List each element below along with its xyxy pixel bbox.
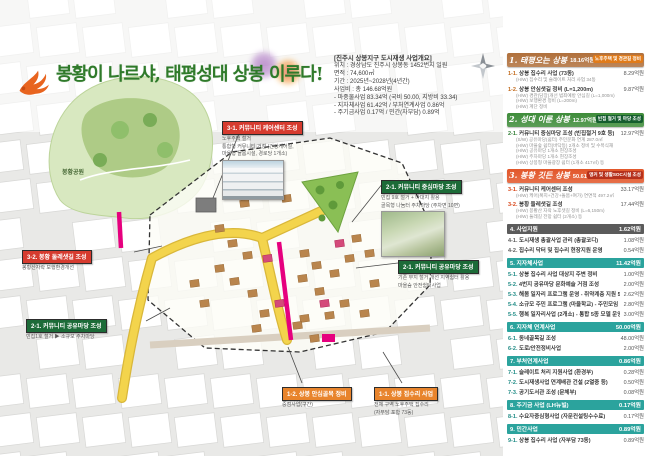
budget-item-row: 4-2. 집수리 닥터 및 집수리 현장지원 운영0.54억원 [508,246,644,254]
city-block [440,296,483,331]
callout-line: 중점사업(구간) [282,402,382,409]
building [300,249,310,257]
budget-item: 3-2. 봉황 둘레샛길 조성17.44억원(H/W) 봉황산 자락 노후샛길 … [508,200,644,219]
item-number: 8-1. [508,414,519,420]
item-subline: (H/W) 집수리 및 슬레이트 처리 사업 34동 [516,77,644,83]
item-title: 5-5. 행복 일자리사업 (2개소) - 통합 5종 모델 운영 [508,310,620,318]
city-block [312,413,355,448]
city-block [266,413,309,448]
section-title: 3. 봉황 깃든 상봉 [509,170,570,181]
item-amount: 0.54억원 [624,246,644,254]
item-subline: (H/W) 상봉형 마을광장 쉼터 (1개소 417㎡) 등 [516,160,644,166]
item-amount: 3.00억원 [624,310,644,318]
item-title: 7-2. 도시재생사업 연계배관 건설 (2열중 등) [508,378,608,386]
section-header: 1. 태평오는 상봉18.16억원노후주택 및 경관길 정비 [507,53,644,67]
map-callout: 2-1. 커뮤니티 공유마당 조성기존 부지 철거 개선 지역쉼터 활용마을숲 … [398,256,504,289]
budget-sidebar: 1. 태평오는 상봉18.16억원노후주택 및 경관길 정비1-1. 상봉 집수… [503,0,647,456]
item-number: 5-5. [508,312,519,318]
section-title: 9. 민간사업 [510,424,538,433]
item-amount: 17.44억원 [621,200,644,208]
item-number: 7-2. [508,380,519,386]
building [320,299,330,307]
item-title: 9-1. 상봉 집수리 사업 (자부담 73동) [508,436,591,444]
section-header: 7. 부처연계사업0.86억원 [507,356,644,366]
building [335,239,345,247]
building [340,299,350,307]
budget-item-row: 7-1. 슬레이트 처리 지원사업 (환경부)0.28억원 [508,368,644,376]
overview-line: 사업비 : 총 146.68억원 [334,87,502,95]
budget-item: 5-2. 4번지 공유마당 문화예술 거점 조성2.00억원 [508,280,644,288]
map-callout: 1-2. 상봉 안심골목 정비중점사업(구간) [282,383,382,409]
item-amount: 48.00억원 [621,334,644,342]
building [365,249,375,257]
item-number: 7-3. [508,390,519,396]
item-title: 2-1. 커뮤니티 중심마당 조성 (빈집철거 9호 등) [508,129,614,137]
callout-line: 노후주택 철거 [222,136,354,143]
item-number: 1-2. [508,87,519,93]
building [370,279,380,287]
item-title: 6-2. 도로/안전정비사업 [508,344,561,352]
section-badge: 노후주택 및 경관길 정비 [593,55,643,63]
item-number: 5-3. [508,292,519,298]
city-block [0,374,24,409]
callout-header: 2-1. 커뮤니티 공유마당 조성 [398,260,479,274]
budget-item-row: 8-1. 수요자중심형사업 (자문컨설팅수수료)0.17억원 [508,412,644,420]
slogan-banner: 봉황이 나르샤, 태평성대 상봉 이루다! [18,58,338,110]
budget-item: 7-3. 공기도서관 조성 (문체부)0.08억원 [508,388,644,396]
overview-line: - 마중물사업 83.34억 (국비 50.00, 지방비 33.34) [334,95,502,103]
project-road-2 [119,212,121,248]
building [215,224,225,232]
building [215,264,225,272]
callout-header: 3-2. 봉황 둘레샛길 조성 [22,250,92,264]
item-title: 5-2. 4번지 공유마당 문화예술 거점 조성 [508,280,599,288]
city-block [0,296,24,331]
callout-line: 골목형 나눔터 주차마당 (주차면 10면) [381,203,501,210]
map-callout: 1-1. 상봉 집수리 사업전체 구역 노후주택 집수리(자부담 포함 73동) [374,383,468,416]
item-amount: 2.62억원 [624,290,644,298]
callout-header: 2-1. 커뮤니티 중심마당 조성 [381,180,462,194]
highlight-building [322,334,335,342]
section-amount: 0.89억원 [619,424,641,433]
budget-item-row: 3-1. 커뮤니티 케어센터 조성33.17억원 [508,185,644,193]
section-header: 8. 주기금 사업 (LH뉴빌)0.17억원 [507,400,644,410]
building [298,274,308,282]
budget-item: 2-1. 커뮤니티 중심마당 조성 (빈집철거 9호 등)12.97억원(S/W… [508,129,644,166]
callout-header: 3-1. 커뮤니티 케어센터 조성 [222,121,303,135]
item-number: 4-1. [508,238,519,244]
building [252,324,262,332]
building [200,299,210,307]
budget-item-row: 1-1. 상봉 집수리 사업 (73동)8.29억원 [508,69,644,77]
city-block [220,413,263,448]
item-amount: 0.50억원 [624,378,644,386]
budget-item: 7-2. 도시재생사업 연계배관 건설 (2열중 등)0.50억원 [508,378,644,386]
callout-line: 마을숲 안전쉼터사업 [398,283,504,290]
budget-item-row: 6-2. 도로/안전정비사업2.00억원 [508,344,644,352]
item-title: 1-2. 상봉 안심샛길 정비 (L=1,200m) [508,85,593,93]
item-title: 5-4. 소규모 주민 프로그램 (마을학교) - 주민모임 5곳 [508,300,620,308]
building [293,321,303,329]
budget-item: 5-1. 상봉 집수리 사업 대상지 주변 정비1.00억원 [508,270,644,278]
budget-item-row: 7-2. 도시재생사업 연계배관 건설 (2열중 등)0.50억원 [508,378,644,386]
callout-line: 마을형 돌봄시설, 경로당 1개소) [222,151,354,158]
callout-line: 통합형 커뮤니티 거점 (건강케어실, [222,144,354,151]
park-label: 봉황공원 [62,168,84,176]
callout-line: 봉황산자락 보행환경개선 [22,265,138,272]
building [260,309,270,317]
budget-item-row: 6-1. 동네골목길 조성48.00억원 [508,334,644,342]
city-block [0,218,24,253]
item-title: 3-2. 봉황 둘레샛길 조성 [508,200,563,208]
budget-item-row: 5-5. 행복 일자리사업 (2개소) - 통합 5종 모델 운영3.00억원 [508,310,644,318]
section-header: 3. 봉황 깃든 상봉50.61억원앵커 및 생활SOC시설 조성 [507,169,644,183]
budget-item: 9-1. 상봉 집수리 사업 (자부담 73동)0.89억원 [508,436,644,444]
item-number: 3-1. [508,187,519,193]
city-block [440,140,483,175]
item-amount: 0.17억원 [624,412,644,420]
budget-item: 4-2. 집수리 닥터 및 집수리 현장지원 운영0.54억원 [508,246,644,254]
item-amount: 0.08억원 [624,388,644,396]
budget-item: 8-1. 수요자중심형사업 (자문컨설팅수수료)0.17억원 [508,412,644,420]
building [190,279,200,287]
item-title: 5-1. 상봉 집수리 사업 대상지 주변 정비 [508,270,598,278]
section-badge: 빈집 철거 및 마당 조성 [596,115,643,123]
budget-item-row: 1-2. 상봉 안심샛길 정비 (L=1,200m)9.87억원 [508,85,644,93]
section-header: 9. 민간사업0.89억원 [507,424,644,434]
compass-icon [470,52,496,82]
budget-item: 5-5. 행복 일자리사업 (2개소) - 통합 5종 모델 운영3.00억원 [508,310,644,318]
callout-line: 기존 부지 철거 개선 지역쉼터 활용 [398,275,504,282]
callout-line: (자부담 포함 73동) [374,410,468,417]
section-title: 5. 지자체사업 [510,258,543,267]
city-block [404,413,447,448]
city-block [72,374,115,409]
overview-line: - 주기금사업 0.17억 / 민간(자부담) 0.89억 [334,110,502,118]
building [263,254,273,262]
item-number: 9-1. [508,438,519,444]
item-number: 6-1. [508,336,519,342]
budget-item: 5-3. 해봄 일자리 프로그램 운영 - 취약계층 지원 5곳2.62억원 [508,290,644,298]
section-amount: 1.62억원 [619,224,641,233]
section-title: 8. 주기금 사업 (LH뉴빌) [510,400,569,409]
budget-item-row: 9-1. 상봉 집수리 사업 (자부담 73동)0.89억원 [508,436,644,444]
budget-item: 1-2. 상봉 안심샛길 정비 (L=1,200m)9.87억원(H/W) 경관… [508,85,644,110]
slogan-text: 봉황이 나르샤, 태평성대 상봉 이루다! [56,66,356,85]
section-header: 5. 지자체사업11.42억원 [507,258,644,268]
item-subline: (H/W) 케어(복지+건강+돌봄+여가) 연면적 497.2㎡ [516,193,644,199]
section-title: 6. 지자체 연계사업 [510,322,555,331]
item-amount: 0.89억원 [624,436,644,444]
item-amount: 1.08억원 [624,236,644,244]
city-block [174,413,217,448]
section-amount: 11.42억원 [616,258,641,267]
city-block [358,335,401,370]
building [275,299,285,307]
phoenix-icon [18,64,52,102]
city-block [26,374,69,409]
item-number: 4-2. [508,248,519,254]
building [312,261,322,269]
item-amount: 8.29억원 [624,69,644,77]
item-number: 6-2. [508,346,519,352]
budget-item-row: 7-3. 공기도서관 조성 (문체부)0.08억원 [508,388,644,396]
item-title: 4-1. 도시재생 총괄사업 관리 (총괄코디) [508,236,598,244]
care-center-building [196,198,216,212]
budget-item: 3-1. 커뮤니티 케어센터 조성33.17억원(H/W) 케어(복지+건강+돌… [508,185,644,199]
item-amount: 1.00억원 [624,270,644,278]
budget-item-row: 5-2. 4번지 공유마당 문화예술 거점 조성2.00억원 [508,280,644,288]
section-header: 2. 성대 이룬 상봉12.97억원빈집 철거 및 마당 조성 [507,113,644,127]
section-badge: 앵커 및 생활SOC시설 조성 [587,171,643,179]
item-number: 7-1. [508,370,519,376]
building [230,277,240,285]
section-title: 1. 태평오는 상봉 [509,55,567,66]
section-title: 2. 성대 이룬 상봉 [509,114,570,125]
city-block [36,413,79,448]
section-title: 7. 부처연계사업 [510,356,548,365]
item-title: 7-1. 슬레이트 처리 지원사업 (환경부) [508,368,593,376]
section-amount: 12.97억원 [573,116,597,124]
building [315,287,325,295]
city-block [450,413,493,448]
map-callout: 2-1. 커뮤니티 공유마당 조성빈집1호 철거 ▶ 소규모 주차마당 [26,315,148,341]
item-amount: 0.28억원 [624,368,644,376]
section-header: 6. 지자체 연계사업50.00억원 [507,322,644,332]
callout-header: 1-2. 상봉 안심골목 정비 [282,387,352,401]
budget-item-row: 4-1. 도시재생 총괄사업 관리 (총괄코디)1.08억원 [508,236,644,244]
item-title: 8-1. 수요자중심형사업 (자문컨설팅수수료) [508,412,605,420]
city-block [0,140,24,175]
map-callout: 2-1. 커뮤니티 중심마당 조성빈집 9호 철거 + 나대지 활용골목형 나눔… [381,176,501,257]
budget-item: 1-1. 상봉 집수리 사업 (73동)8.29억원(H/W) 집수리 및 슬레… [508,69,644,83]
city-block [358,413,401,448]
callout-header: 1-1. 상봉 집수리 사업 [374,387,438,401]
section-amount: 0.86억원 [619,356,641,365]
item-subline: (H/W) 둘레길 전망 쉼터 (2개소) 등 [516,214,644,220]
item-number: 5-2. [508,282,519,288]
item-title: 3-1. 커뮤니티 케어센터 조성 [508,185,573,193]
section-amount: 50.00억원 [616,322,641,331]
building [240,199,250,207]
budget-item-row: 5-3. 해봄 일자리 프로그램 운영 - 취약계층 지원 5곳2.62억원 [508,290,644,298]
item-title: 7-3. 공기도서관 조성 (문체부) [508,388,576,396]
building [360,309,370,317]
item-subline: (H/W) 계단 정비 [516,104,644,110]
section-amount: 0.17억원 [619,400,641,409]
city-block [128,413,171,448]
item-title: 1-1. 상봉 집수리 사업 (73동) [508,69,574,77]
budget-item-row: 5-1. 상봉 집수리 사업 대상지 주변 정비1.00억원 [508,270,644,278]
callout-line: 전체 구역 노후주택 집수리 [374,402,468,409]
city-block [450,335,493,370]
city-block [82,413,125,448]
item-number: 5-4. [508,302,519,308]
budget-item-row: 3-2. 봉황 둘레샛길 조성17.44억원 [508,200,644,208]
section-header: 4. 사업지원1.62억원 [507,224,644,234]
budget-item: 5-4. 소규모 주민 프로그램 (마을학교) - 주민모임 5곳2.80억원 [508,300,644,308]
callout-header: 2-1. 커뮤니티 공유마당 조성 [26,319,107,333]
building [228,239,238,247]
building [352,234,362,242]
map-callout: 3-2. 봉황 둘레샛길 조성봉황산자락 보행환경개선 [22,246,138,272]
item-title: 4-2. 집수리 닥터 및 집수리 현장지원 운영 [508,246,603,254]
item-amount: 33.17억원 [621,185,644,193]
building [243,251,253,259]
city-block [0,179,34,214]
item-amount: 9.87억원 [624,85,644,93]
item-amount: 2.00억원 [624,344,644,352]
city-block [164,374,207,409]
budget-item-row: 2-1. 커뮤니티 중심마당 조성 (빈집철거 9호 등)12.97억원 [508,129,644,137]
callout-photo-image [381,211,445,257]
building [310,334,320,342]
urban-regeneration-poster: 봉황공원 [0,0,647,456]
city-block [210,374,253,409]
item-number: 5-1. [508,272,519,278]
budget-item: 6-1. 동네골목길 조성48.00억원 [508,334,644,342]
budget-item-row: 5-4. 소규모 주민 프로그램 (마을학교) - 주민모임 5곳2.80억원 [508,300,644,308]
callout-rendering-image [222,160,284,200]
building [330,269,340,277]
section-amount: 18.16억원 [570,56,594,64]
item-title: 6-1. 동네골목길 조성 [508,334,556,342]
callout-line: 빈집1호 철거 ▶ 소규모 주차마당 [26,334,148,341]
building [345,254,355,262]
item-title: 5-3. 해봄 일자리 프로그램 운영 - 취약계층 지원 5곳 [508,290,620,298]
budget-item: 4-1. 도시재생 총괄사업 관리 (총괄코디)1.08억원 [508,236,644,244]
building [248,289,258,297]
item-amount: 2.00억원 [624,280,644,288]
budget-item: 6-2. 도로/안전정비사업2.00억원 [508,344,644,352]
section-title: 4. 사업지원 [510,224,538,233]
budget-item: 7-1. 슬레이트 처리 지원사업 (환경부)0.28억원 [508,368,644,376]
item-amount: 12.97억원 [621,129,644,137]
city-block [0,413,34,448]
callout-line: 빈집 9호 철거 + 나대지 활용 [381,195,501,202]
building [325,311,335,319]
map-callout: 3-1. 커뮤니티 케어센터 조성노후주택 철거통합형 커뮤니티 거점 (건강케… [222,117,354,200]
item-amount: 2.80억원 [624,300,644,308]
